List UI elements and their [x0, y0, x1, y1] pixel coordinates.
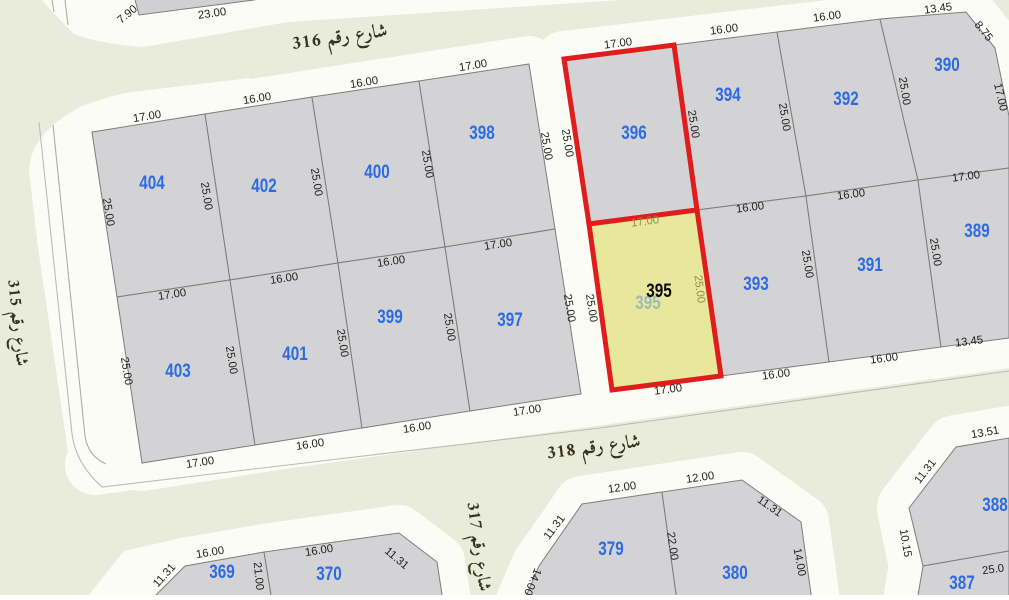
svg-text:401: 401	[282, 344, 308, 365]
svg-text:396: 396	[621, 123, 647, 144]
svg-text:393: 393	[743, 274, 769, 295]
svg-text:392: 392	[833, 89, 859, 110]
svg-text:395: 395	[646, 281, 672, 302]
svg-text:387: 387	[949, 573, 975, 594]
svg-text:388: 388	[982, 495, 1008, 516]
svg-text:369: 369	[209, 562, 235, 583]
svg-text:398: 398	[469, 123, 495, 144]
svg-text:370: 370	[316, 564, 342, 585]
svg-text:379: 379	[598, 539, 624, 560]
svg-text:391: 391	[857, 255, 883, 276]
svg-text:399: 399	[377, 307, 403, 328]
svg-text:403: 403	[165, 361, 191, 382]
svg-text:394: 394	[715, 85, 741, 106]
svg-text:402: 402	[251, 176, 277, 197]
svg-text:389: 389	[964, 221, 990, 242]
svg-text:404: 404	[139, 173, 165, 194]
svg-text:397: 397	[497, 310, 523, 331]
svg-text:380: 380	[722, 563, 748, 584]
svg-text:390: 390	[934, 55, 960, 76]
svg-text:400: 400	[364, 162, 390, 183]
